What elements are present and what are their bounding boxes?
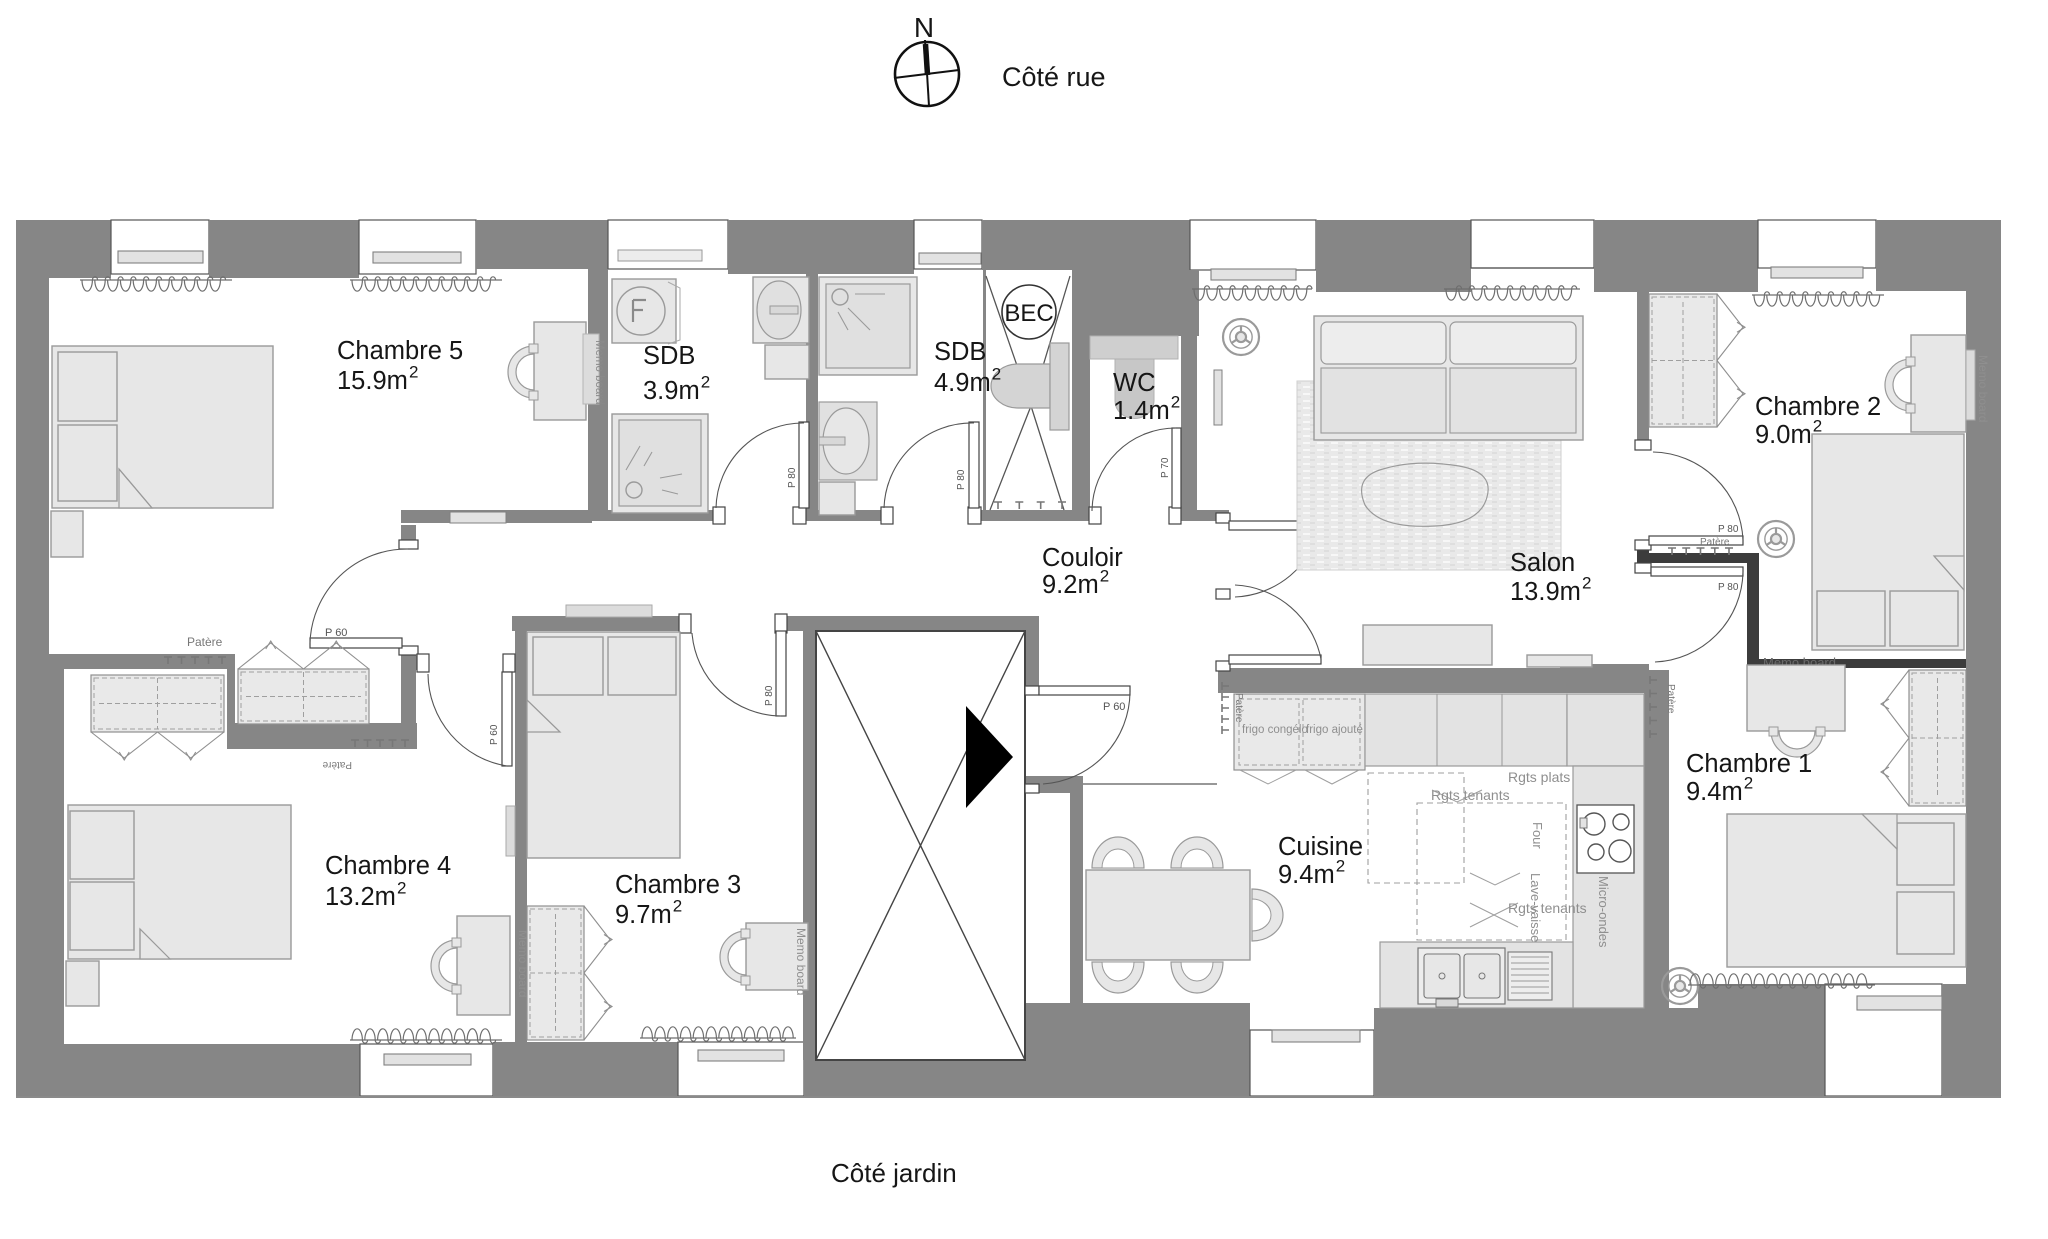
svg-text:3.9m: 3.9m bbox=[643, 377, 700, 405]
svg-text:Côté rue: Côté rue bbox=[1002, 62, 1106, 92]
svg-text:2: 2 bbox=[992, 365, 1001, 384]
svg-text:frigo ajouté: frigo ajouté bbox=[1306, 724, 1363, 736]
svg-text:P 80: P 80 bbox=[1718, 582, 1739, 593]
svg-text:Chambre 5: Chambre 5 bbox=[337, 337, 463, 365]
svg-text:2: 2 bbox=[1336, 857, 1345, 876]
svg-text:Salon: Salon bbox=[1510, 549, 1575, 577]
svg-text:Memo board: Memo board bbox=[593, 340, 605, 405]
svg-text:P 60: P 60 bbox=[325, 627, 347, 639]
svg-text:Côté jardin: Côté jardin bbox=[831, 1158, 957, 1188]
svg-text:Four: Four bbox=[1530, 822, 1545, 849]
svg-text:Patère: Patère bbox=[1233, 693, 1244, 723]
svg-text:15.9m: 15.9m bbox=[337, 367, 408, 395]
svg-text:SDB: SDB bbox=[934, 338, 986, 366]
svg-text:13.2m: 13.2m bbox=[325, 883, 396, 911]
svg-text:P 60: P 60 bbox=[1103, 701, 1125, 713]
svg-text:9.4m: 9.4m bbox=[1278, 861, 1335, 889]
svg-text:2: 2 bbox=[1100, 567, 1109, 586]
svg-text:9.4m: 9.4m bbox=[1686, 778, 1743, 806]
svg-text:9.2m: 9.2m bbox=[1042, 571, 1099, 599]
svg-text:P 80: P 80 bbox=[1718, 524, 1739, 535]
svg-text:P 80: P 80 bbox=[956, 469, 967, 490]
svg-text:SDB: SDB bbox=[643, 342, 695, 370]
svg-text:frigo congélo: frigo congélo bbox=[1242, 724, 1308, 736]
svg-text:4.9m: 4.9m bbox=[934, 369, 991, 397]
svg-text:P 80: P 80 bbox=[764, 685, 775, 706]
svg-text:P 70: P 70 bbox=[1160, 457, 1171, 478]
svg-text:Memo board: Memo board bbox=[794, 928, 808, 995]
svg-text:2: 2 bbox=[701, 373, 710, 392]
svg-text:2: 2 bbox=[409, 363, 418, 382]
svg-text:Rgts tenants: Rgts tenants bbox=[1431, 787, 1510, 803]
svg-text:2: 2 bbox=[1582, 574, 1591, 593]
svg-text:Couloir: Couloir bbox=[1042, 544, 1123, 572]
svg-text:N: N bbox=[914, 12, 934, 43]
svg-text:Cuisine: Cuisine bbox=[1278, 833, 1363, 861]
svg-text:Patère: Patère bbox=[1700, 537, 1730, 548]
svg-text:Patère: Patère bbox=[1665, 684, 1676, 714]
svg-text:BEC: BEC bbox=[1004, 300, 1053, 327]
svg-text:2: 2 bbox=[397, 879, 406, 898]
svg-text:P 60: P 60 bbox=[489, 724, 500, 745]
svg-text:2: 2 bbox=[1744, 774, 1753, 793]
svg-text:2: 2 bbox=[1813, 417, 1822, 436]
svg-text:Patère: Patère bbox=[187, 635, 223, 649]
svg-text:9.7m: 9.7m bbox=[615, 901, 672, 929]
svg-text:Chambre 3: Chambre 3 bbox=[615, 871, 741, 899]
svg-text:P 80: P 80 bbox=[787, 467, 798, 488]
svg-text:Patère: Patère bbox=[322, 759, 352, 770]
svg-text:1.4m: 1.4m bbox=[1113, 397, 1170, 425]
svg-text:Rgts plats: Rgts plats bbox=[1508, 769, 1570, 785]
svg-text:Memo board: Memo board bbox=[1976, 355, 1990, 422]
svg-text:13.9m: 13.9m bbox=[1510, 578, 1581, 606]
svg-text:Rgts tenants: Rgts tenants bbox=[1508, 900, 1587, 916]
svg-text:2: 2 bbox=[673, 897, 682, 916]
svg-text:Chambre 4: Chambre 4 bbox=[325, 852, 451, 880]
svg-text:9.0m: 9.0m bbox=[1755, 421, 1812, 449]
svg-text:WC: WC bbox=[1113, 369, 1155, 397]
svg-text:2: 2 bbox=[1171, 393, 1180, 412]
svg-text:Micro-ondes: Micro-ondes bbox=[1596, 876, 1611, 948]
